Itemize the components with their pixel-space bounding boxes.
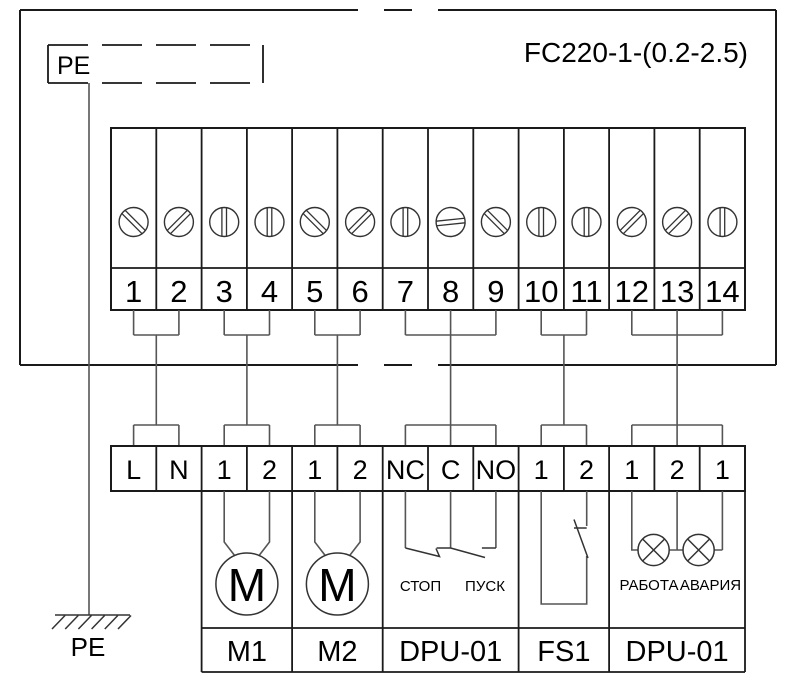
motor-letter: M	[228, 559, 266, 611]
connector-cell-dividers	[156, 446, 699, 491]
ground-icon	[52, 615, 131, 629]
connector-label: 1	[307, 455, 322, 485]
screw-icon	[210, 208, 239, 237]
no-contact-icon	[451, 548, 496, 558]
screw-icon	[435, 206, 467, 238]
wire-group-dpu-buttons	[405, 310, 496, 446]
connector-label: 1	[534, 455, 549, 485]
button-wires	[405, 491, 496, 548]
connector-label: NC	[386, 455, 425, 485]
screw-icon	[158, 201, 199, 242]
terminal-number: 2	[170, 274, 187, 309]
compartment-label-m1: M1	[227, 636, 267, 668]
device-compartments: M M1 M M2 СТОП ПУСК DPU-01 FS1	[202, 491, 745, 672]
connector-label: 2	[670, 455, 685, 485]
screw-icon	[255, 208, 284, 237]
terminal-number: 8	[442, 274, 459, 309]
terminal-number: 11	[570, 274, 602, 309]
compartment-label-dpu-buttons: DPU-01	[399, 636, 502, 668]
stop-button-label: СТОП	[400, 578, 441, 595]
wire-group-fs1	[541, 310, 586, 446]
compartment-label-m2: M2	[317, 636, 357, 668]
connector-label: 1	[217, 455, 232, 485]
screw-icon	[391, 208, 420, 237]
pe-conductor: PE	[52, 83, 131, 662]
wiring-harness	[134, 310, 723, 446]
connector-label: 1	[715, 455, 730, 485]
wire-group-m2	[315, 310, 360, 446]
terminal-number: 10	[524, 274, 558, 309]
screw-icon	[475, 201, 516, 242]
screw-icon	[113, 201, 154, 242]
motor-m1-wires	[224, 491, 269, 556]
terminal-number: 14	[705, 274, 739, 309]
nc-contact-icon	[405, 548, 450, 557]
device-model-label: FC220-1-(0.2-2.5)	[524, 37, 748, 68]
connector-label: 1	[624, 455, 639, 485]
terminal-number: 13	[660, 274, 694, 309]
dpu-buttons: СТОП ПУСК DPU-01	[399, 491, 505, 668]
connector-label: C	[441, 455, 461, 485]
float-switch-wires	[541, 491, 587, 604]
connector-label: 2	[262, 455, 277, 485]
connector-label: N	[169, 455, 189, 485]
float-switch-fs1: FS1	[537, 491, 590, 668]
dpu-lamps: РАБОТА АВАРИЯ DPU-01	[619, 491, 741, 668]
pe-box-label: PE	[57, 52, 90, 80]
screw-icon	[572, 208, 601, 237]
terminal-number: 6	[351, 274, 368, 309]
run-lamp-icon	[638, 534, 669, 565]
ground-pe-label: PE	[71, 632, 106, 662]
pe-terminal-box: PE	[48, 45, 263, 83]
terminal-number: 3	[216, 274, 233, 309]
connector-label: 2	[353, 455, 368, 485]
wiring-diagram: FC220-1-(0.2-2.5) PE PE 1 2 3 4 5	[0, 0, 790, 686]
screw-icon	[340, 201, 381, 242]
screw-icon	[294, 201, 335, 242]
connector-label: 2	[579, 455, 594, 485]
motor-m1: M M1	[216, 491, 278, 668]
motor-m2: M M2	[306, 491, 368, 668]
terminal-number: 7	[397, 274, 414, 309]
motor-letter: M	[318, 559, 356, 611]
run-lamp-label: РАБОТА	[619, 577, 678, 594]
motor-m2-wires	[315, 491, 360, 556]
terminal-block: 1 2 3 4 5 6 7 8 9 10 11 12 13 14	[111, 128, 745, 310]
alarm-lamp-label: АВАРИЯ	[680, 577, 741, 594]
screw-icon	[527, 208, 556, 237]
connector-label: NO	[476, 455, 517, 485]
alarm-lamp-icon	[683, 534, 714, 565]
connector-label: L	[126, 455, 141, 485]
terminal-number: 1	[125, 274, 142, 309]
wire-group-ln	[134, 310, 179, 446]
screw-icon	[657, 201, 698, 242]
compartment-label-fs1: FS1	[537, 636, 590, 668]
terminal-number: 5	[306, 274, 323, 309]
screw-icon	[611, 201, 652, 242]
screw-icon	[708, 208, 737, 237]
start-button-label: ПУСК	[465, 578, 505, 595]
terminal-number: 12	[615, 274, 649, 309]
connector-strip: L N 1 2 1 2 NC C NO 1 2 1 2 1	[111, 446, 745, 491]
terminal-number: 9	[487, 274, 504, 309]
terminal-number: 4	[261, 274, 278, 309]
wire-group-m1	[224, 310, 269, 446]
compartment-label-dpu-lamps: DPU-01	[626, 636, 729, 668]
wire-group-dpu-lamps	[632, 310, 723, 446]
